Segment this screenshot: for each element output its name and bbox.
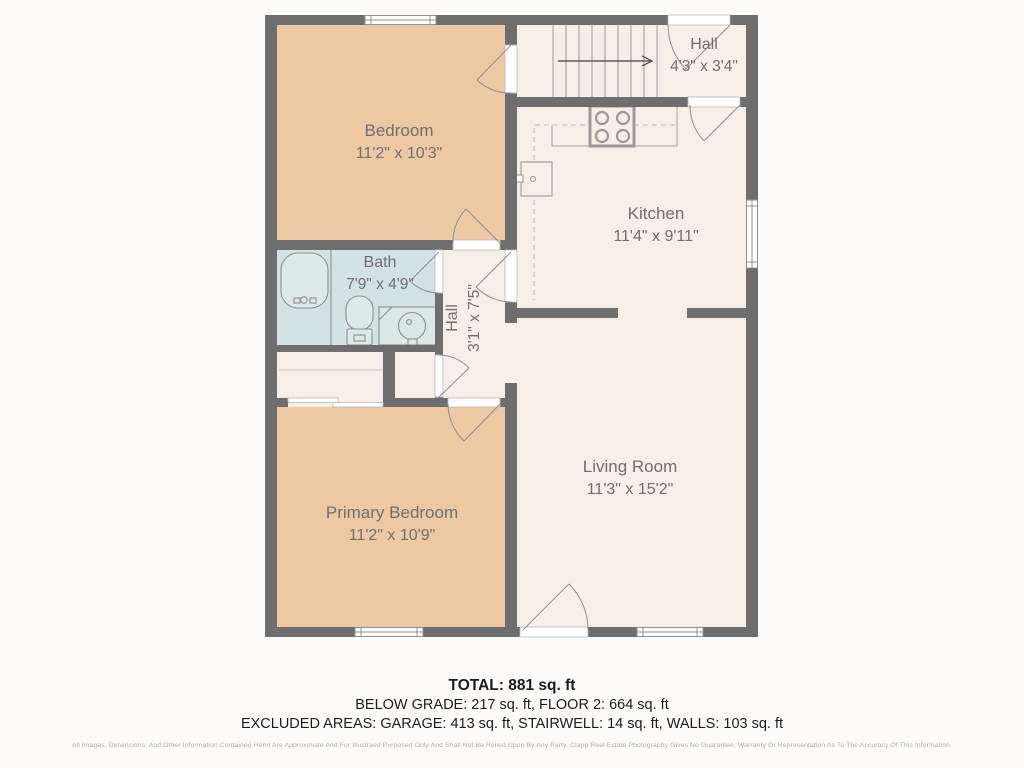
window: [365, 16, 436, 25]
door-opening: [505, 250, 517, 302]
wall: [383, 398, 448, 407]
wall: [265, 15, 365, 25]
floor-plan-page: Bedroom 11'2" x 10'3" Hall 4'3" x 3'4" K…: [0, 0, 1024, 768]
floor-plan-drawing: [0, 0, 1024, 768]
door-opening: [453, 240, 500, 250]
wall: [423, 627, 520, 637]
wall: [265, 240, 453, 250]
room-label-hall-upper: Hall 4'3" x 3'4": [670, 34, 738, 78]
room-label-primary-bedroom: Primary Bedroom 11'2" x 10'9": [326, 501, 458, 547]
bathroom-sink-icon: [379, 307, 437, 345]
toilet-icon: [346, 296, 373, 345]
stove-icon: [590, 106, 634, 146]
wall: [265, 398, 288, 407]
wall: [500, 398, 517, 407]
wall: [505, 302, 517, 323]
wall: [383, 352, 395, 398]
wall: [517, 308, 618, 318]
door-opening: [448, 398, 500, 407]
door-opening: [505, 45, 517, 93]
wall: [746, 268, 758, 637]
area-summary: TOTAL: 881 sq. ft BELOW GRADE: 217 sq. f…: [0, 677, 1024, 733]
wall: [265, 345, 443, 352]
wall: [740, 97, 746, 107]
disclaimer-text: All Images, Dimensions, And Other Inform…: [0, 742, 1024, 749]
wall: [505, 93, 517, 250]
wall: [746, 15, 758, 200]
kitchen-sink-icon: [516, 162, 552, 196]
wall: [687, 308, 746, 318]
wall: [436, 15, 668, 25]
total-area-text: TOTAL: 881 sq. ft: [0, 677, 1024, 694]
wall: [505, 25, 517, 45]
wall: [517, 97, 688, 107]
window: [355, 628, 423, 637]
wall: [588, 627, 637, 637]
room-label-kitchen: Kitchen 11'4" x 9'11": [613, 202, 698, 248]
wall: [265, 15, 277, 637]
door-opening: [520, 627, 588, 637]
wall: [265, 627, 355, 637]
room-label-bedroom: Bedroom 11'2" x 10'3": [356, 119, 443, 165]
excluded-area-text: EXCLUDED AREAS: GARAGE: 413 sq. ft, STAI…: [0, 716, 1024, 732]
entry-door-opening: [668, 15, 730, 25]
room-label-living-room: Living Room 11'3" x 15'2": [583, 455, 678, 501]
room-label-hall-lower: Hall 3'1" x 7'5": [442, 284, 486, 352]
wall: [505, 383, 517, 627]
window: [747, 200, 758, 268]
door-opening: [688, 97, 740, 107]
door-opening: [435, 355, 443, 397]
window: [637, 628, 703, 637]
grade-area-text: BELOW GRADE: 217 sq. ft, FLOOR 2: 664 sq…: [0, 697, 1024, 713]
bathtub-icon: [281, 253, 328, 308]
room-label-bath: Bath 7'9" x 4'9": [346, 252, 414, 296]
